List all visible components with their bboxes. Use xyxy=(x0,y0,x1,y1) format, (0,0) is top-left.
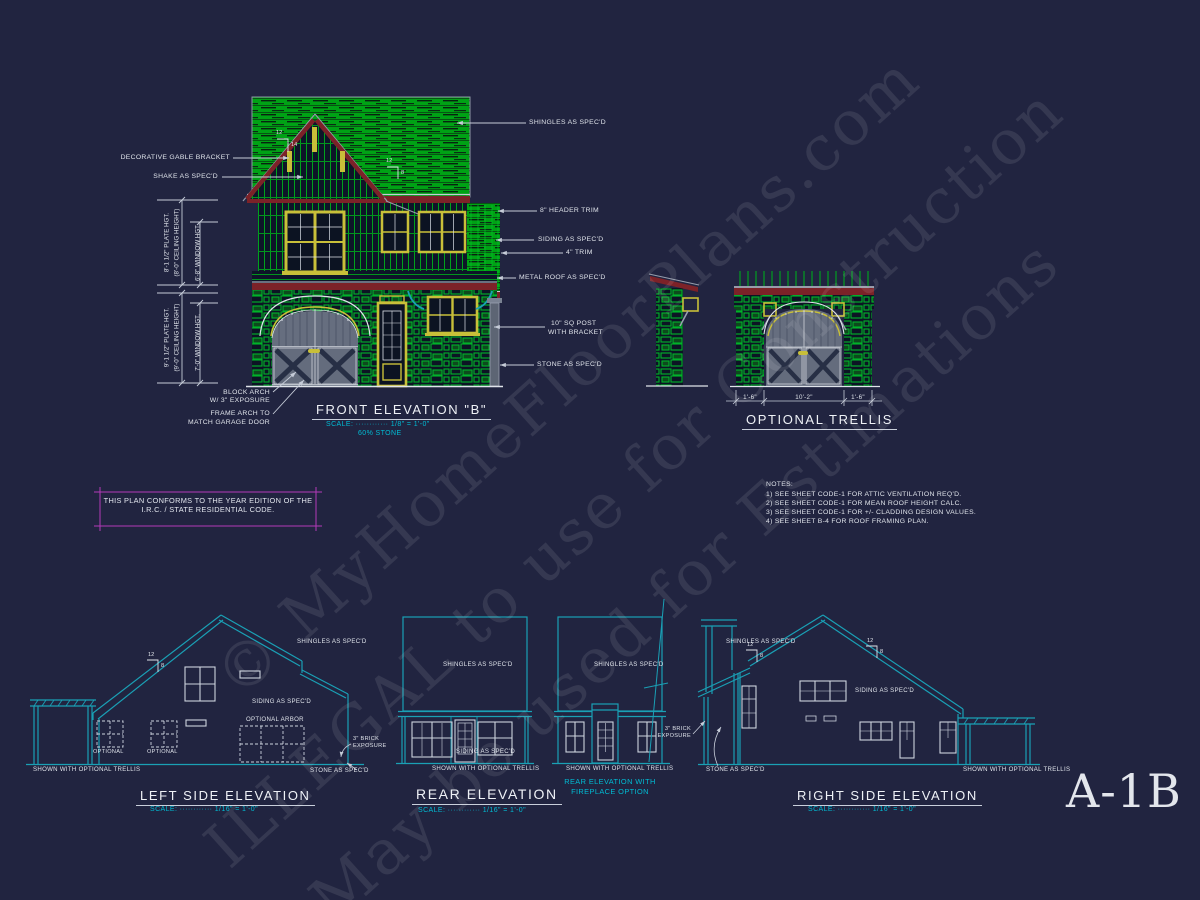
dim-window-height-lower: 7'-0" WINDOW HGT. xyxy=(195,278,202,408)
conform-note-line1: THIS PLAN CONFORMS TO THE YEAR EDITION O… xyxy=(100,496,316,505)
right-elev-label-brick-2: EXPOSURE xyxy=(655,734,691,740)
pitch-rise-left: 12 xyxy=(276,130,282,136)
left-elev-label-optional-1: OPTIONAL xyxy=(93,750,124,756)
front-elevation-title: FRONT ELEVATION "B" xyxy=(312,402,491,420)
label-siding-front: SIDING AS SPEC'D xyxy=(538,236,603,243)
front-elevation-stone-pct: 60% STONE xyxy=(358,430,402,437)
dim-ceiling-height-lower: (9'-0" CEILING HEIGHT) xyxy=(174,273,181,403)
right-elevation-scale: SCALE: ············ 1/16" = 1'-0" xyxy=(808,806,916,813)
front-elevation-drawing xyxy=(243,97,503,387)
label-shingles-front: SHINGLES AS SPEC'D xyxy=(529,119,606,126)
right-elev-label-shown-trellis: SHOWN WITH OPTIONAL TRELLIS xyxy=(963,767,1070,773)
label-block-arch-1: BLOCK ARCH xyxy=(195,389,270,396)
right-elev-label-siding: SIDING AS SPEC'D xyxy=(855,688,914,694)
pitch-run-right: 8 xyxy=(401,170,404,176)
front-elevation-scale: SCALE: ············ 1/8" = 1'-0" xyxy=(326,421,430,428)
right-elev-label-shingles: SHINGLES AS SPEC'D xyxy=(726,639,796,645)
conform-note-line2: I.R.C. / STATE RESIDENTIAL CODE. xyxy=(100,505,316,514)
pitch-rise-right: 12 xyxy=(386,158,392,164)
drawing-sheet: © MyHomeFloorPlans.com ILLEGAL to use fo… xyxy=(0,0,1200,900)
rear-fp-title-1: REAR ELEVATION WITH xyxy=(550,777,670,786)
label-metal-roof: METAL ROOF AS SPEC'D xyxy=(519,274,606,281)
right-elev-label-stone: STONE AS SPEC'D xyxy=(706,767,765,773)
label-frame-arch-1: FRAME ARCH TO xyxy=(190,410,270,417)
label-decorative-gable-bracket: DECORATIVE GABLE BRACKET xyxy=(105,154,230,161)
label-4in-trim: 4" TRIM xyxy=(566,249,593,256)
left-elev-label-optional-2: OPTIONAL xyxy=(147,750,178,756)
right-elev-label-brick-1: 3" BRICK xyxy=(655,727,691,733)
left-elev-pitch-run: 8 xyxy=(161,663,164,669)
label-header-trim: 8" HEADER TRIM xyxy=(540,207,599,214)
right-elev-pitch-run-1: 8 xyxy=(760,653,763,659)
label-frame-arch-2: MATCH GARAGE DOOR xyxy=(170,419,270,426)
left-elev-label-shown-trellis: SHOWN WITH OPTIONAL TRELLIS xyxy=(33,767,140,773)
dim-plate-height-lower: 9'-1 1/2" PLATE HGT. xyxy=(164,273,171,403)
left-elev-pitch-rise: 12 xyxy=(148,652,154,658)
right-elevation-title: RIGHT SIDE ELEVATION xyxy=(793,788,982,806)
left-elev-label-arbor: OPTIONAL ARBOR xyxy=(246,717,304,723)
rear-fp-label-shown-trellis: SHOWN WITH OPTIONAL TRELLIS xyxy=(566,766,673,772)
right-elev-pitch-rise-2: 12 xyxy=(867,638,873,644)
sheet-number: A-1B xyxy=(1066,764,1182,818)
right-elev-pitch-rise-1: 12 xyxy=(747,642,753,648)
rear-fp-title-2: FIREPLACE OPTION xyxy=(550,787,670,796)
pitch-run-left: 14 xyxy=(291,142,297,148)
trellis-dim-mid: 10'-2" xyxy=(784,395,824,402)
right-elev-pitch-run-2: 8 xyxy=(880,649,883,655)
